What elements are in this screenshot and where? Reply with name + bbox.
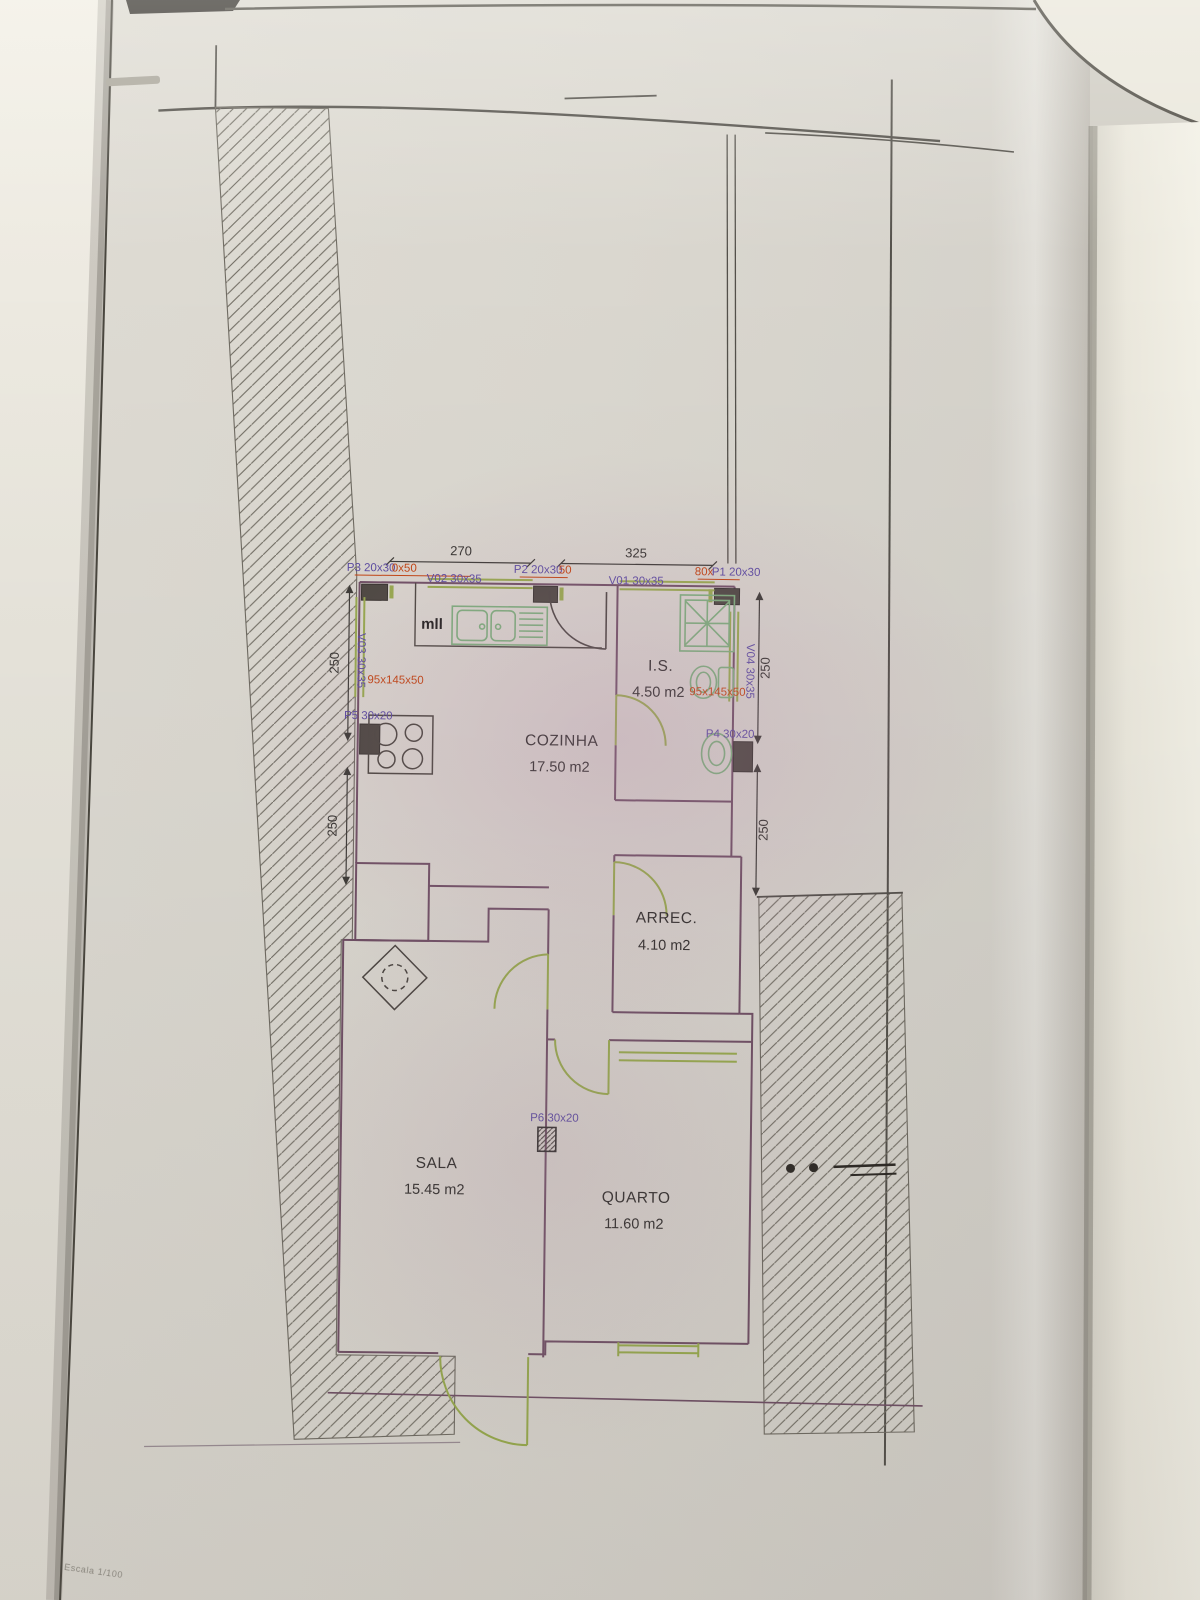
- photo-of-floor-plan: P3 20x30 0x50 V02 30x35 P2 20x30 50 80x …: [0, 0, 1200, 1600]
- next-page-strip: [1087, 122, 1200, 1600]
- page-curl-shading: [990, 0, 1090, 1600]
- drawing-sheet: [60, 0, 1090, 1600]
